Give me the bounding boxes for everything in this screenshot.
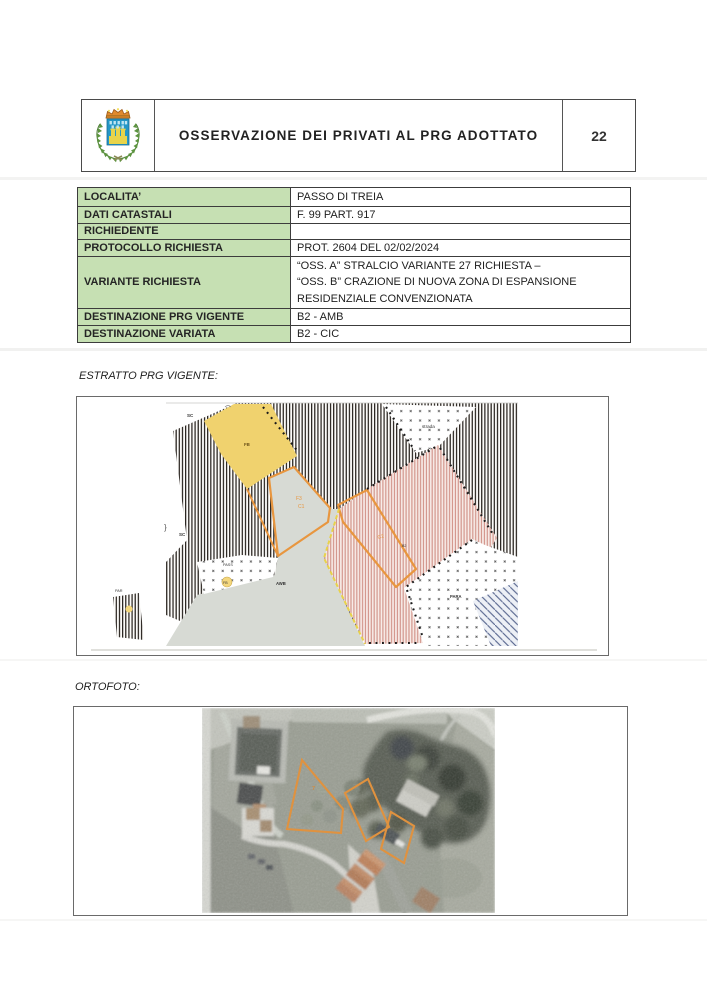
svg-text:F3: F3 — [296, 496, 302, 502]
svg-text:C1: C1 — [298, 504, 305, 510]
svg-text:PASS: PASS — [223, 563, 233, 567]
svg-text:strada: strada — [422, 424, 435, 429]
svg-text:SC: SC — [179, 532, 186, 537]
svg-text:}: } — [164, 523, 167, 532]
svg-text:PARA: PARA — [450, 594, 462, 599]
svg-text:FB: FB — [244, 442, 250, 447]
svg-text:7: 7 — [312, 786, 315, 792]
svg-text:B2: B2 — [402, 544, 406, 548]
svg-text:PAR: PAR — [115, 589, 123, 593]
svg-text:AWB: AWB — [276, 581, 286, 586]
svg-text:SC: SC — [187, 413, 194, 418]
svg-text:FB: FB — [223, 581, 228, 585]
